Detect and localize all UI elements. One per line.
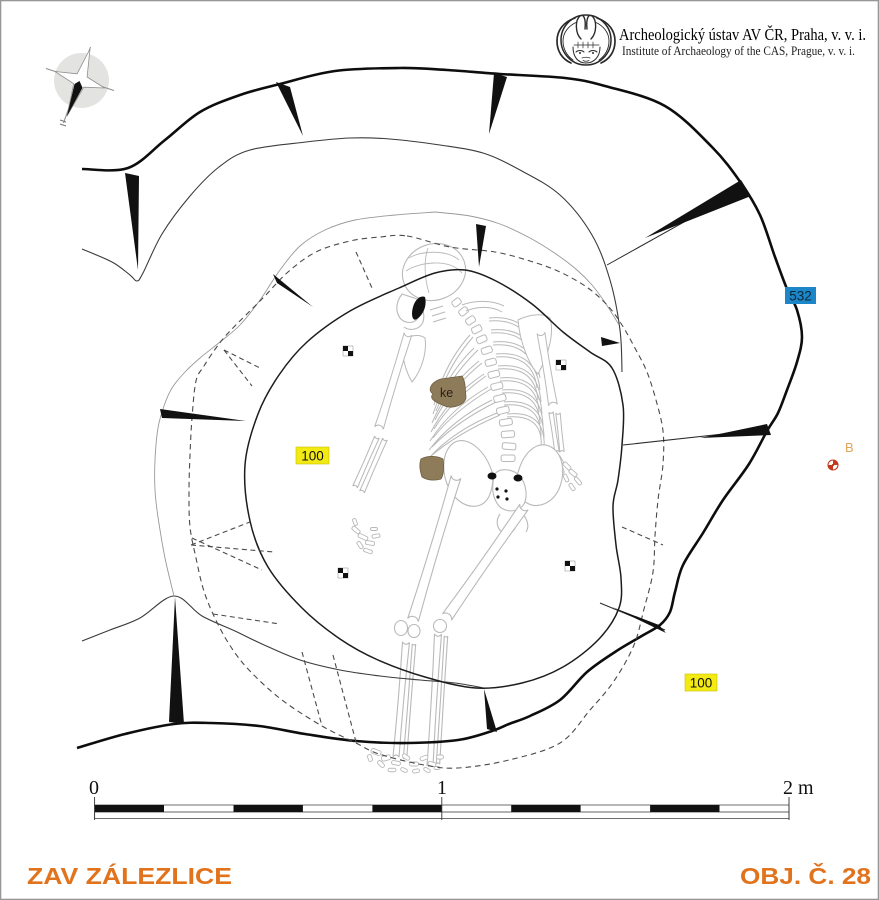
svg-text:100: 100 xyxy=(301,449,324,464)
svg-text:Archeologický ústav AV ČR, Pra: Archeologický ústav AV ČR, Praha, v. v. … xyxy=(619,25,866,44)
svg-text:100: 100 xyxy=(690,676,713,691)
svg-text:ZAV ZÁLEZLICE: ZAV ZÁLEZLICE xyxy=(27,862,232,889)
svg-text:0: 0 xyxy=(89,777,99,799)
svg-text:1: 1 xyxy=(437,777,447,799)
svg-text:532: 532 xyxy=(789,289,812,304)
svg-text:ke: ke xyxy=(440,386,453,400)
svg-text:OBJ. Č. 28: OBJ. Č. 28 xyxy=(740,862,871,889)
svg-text:B: B xyxy=(845,440,854,455)
svg-text:Institute of Archaeology of th: Institute of Archaeology of the CAS, Pra… xyxy=(622,44,855,58)
svg-text:2 m: 2 m xyxy=(783,777,814,799)
